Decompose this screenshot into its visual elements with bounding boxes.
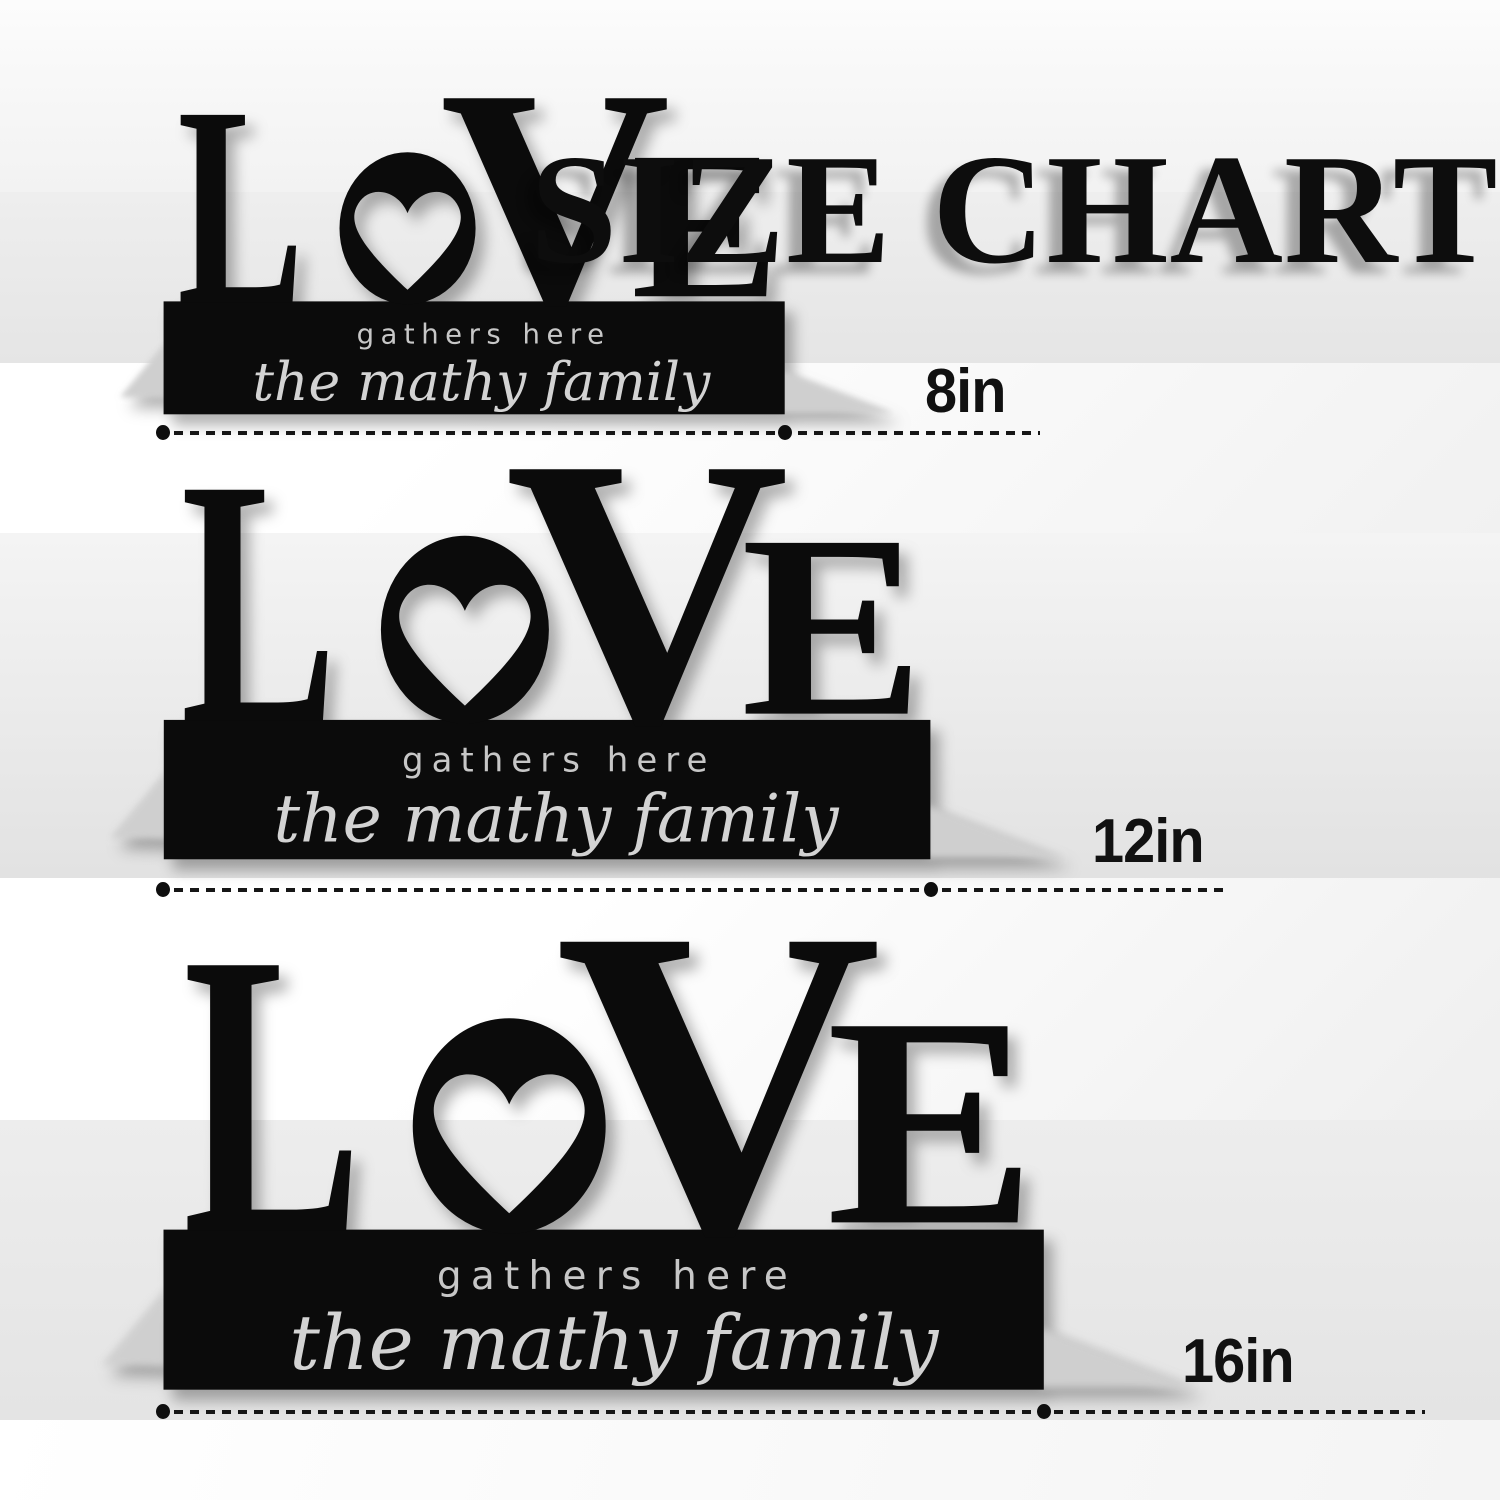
dimension-dashes — [174, 888, 1230, 892]
sign-family-name-text: the mathy family — [289, 1299, 939, 1387]
letter-l: L — [183, 870, 363, 1319]
love-sign-graphic: L V E gathers here the mathy family — [157, 930, 1081, 1402]
sign-tagline-text: gathers here — [402, 741, 715, 781]
dimension-dot-left — [156, 1404, 170, 1419]
dimension-dot-right — [1037, 1404, 1051, 1419]
love-sign-12in: L V E gathers here the mathy family — [158, 459, 963, 870]
background-band — [0, 1420, 1500, 1500]
letter-l: L — [177, 47, 304, 364]
size-label-8in: 8in — [925, 361, 1006, 423]
letter-e: E — [741, 483, 924, 771]
dimension-dashes — [174, 1410, 1425, 1414]
dimension-dot-right — [778, 425, 792, 440]
dimension-dot-left — [156, 425, 170, 440]
dimension-dot-right — [924, 882, 938, 897]
dimension-dot-left — [156, 882, 170, 897]
dimension-line-12in — [156, 882, 1230, 898]
size-label-12in: 12in — [1092, 811, 1204, 873]
dimension-dashes — [174, 431, 1040, 435]
letter-l: L — [181, 408, 337, 798]
dimension-line-16in — [156, 1404, 1425, 1420]
page-title: SIZE CHART — [530, 131, 1495, 288]
dimension-line-8in — [156, 425, 1040, 441]
love-sign-graphic: L V E gathers here the mathy family — [158, 459, 963, 870]
sign-tagline-text: gathers here — [357, 318, 611, 350]
love-sign-16in: L V E gathers here the mathy family — [157, 930, 1081, 1402]
letter-e: E — [826, 955, 1036, 1287]
sign-tagline-text: gathers here — [437, 1254, 797, 1299]
size-label-16in: 16in — [1182, 1331, 1294, 1393]
size-chart-image: SIZE CHART L V E gathers here the mathy … — [0, 0, 1500, 1500]
